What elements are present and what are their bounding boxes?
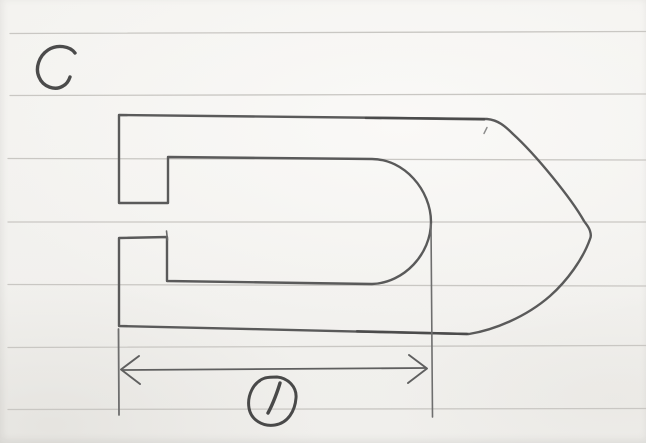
- ruled-line: [8, 346, 646, 348]
- extension-line-right: [431, 224, 433, 417]
- ruled-line: [8, 285, 646, 287]
- dimension-annotation: [119, 224, 433, 425]
- dimension-label: [249, 377, 296, 425]
- paper-sheet: [0, 0, 646, 443]
- extension-line-left: [119, 329, 120, 415]
- part-label-letter: [37, 46, 75, 88]
- stray-pencil-mark: [484, 128, 487, 134]
- ruled-line: [10, 32, 646, 34]
- part-drawing: [119, 115, 591, 334]
- part-outline: [119, 115, 591, 334]
- part-label: [37, 46, 75, 88]
- prong-overshoot-mark: [167, 231, 168, 240]
- pencil-overstroke-top: [366, 118, 484, 120]
- ruled-lines: [8, 32, 646, 410]
- sketch-canvas: [0, 0, 646, 443]
- arrowhead-right: [408, 355, 427, 383]
- pencil-overstroke-bottom: [357, 331, 467, 334]
- ruled-line: [8, 409, 646, 410]
- dimension-line: [123, 368, 425, 370]
- ruled-line: [10, 94, 646, 96]
